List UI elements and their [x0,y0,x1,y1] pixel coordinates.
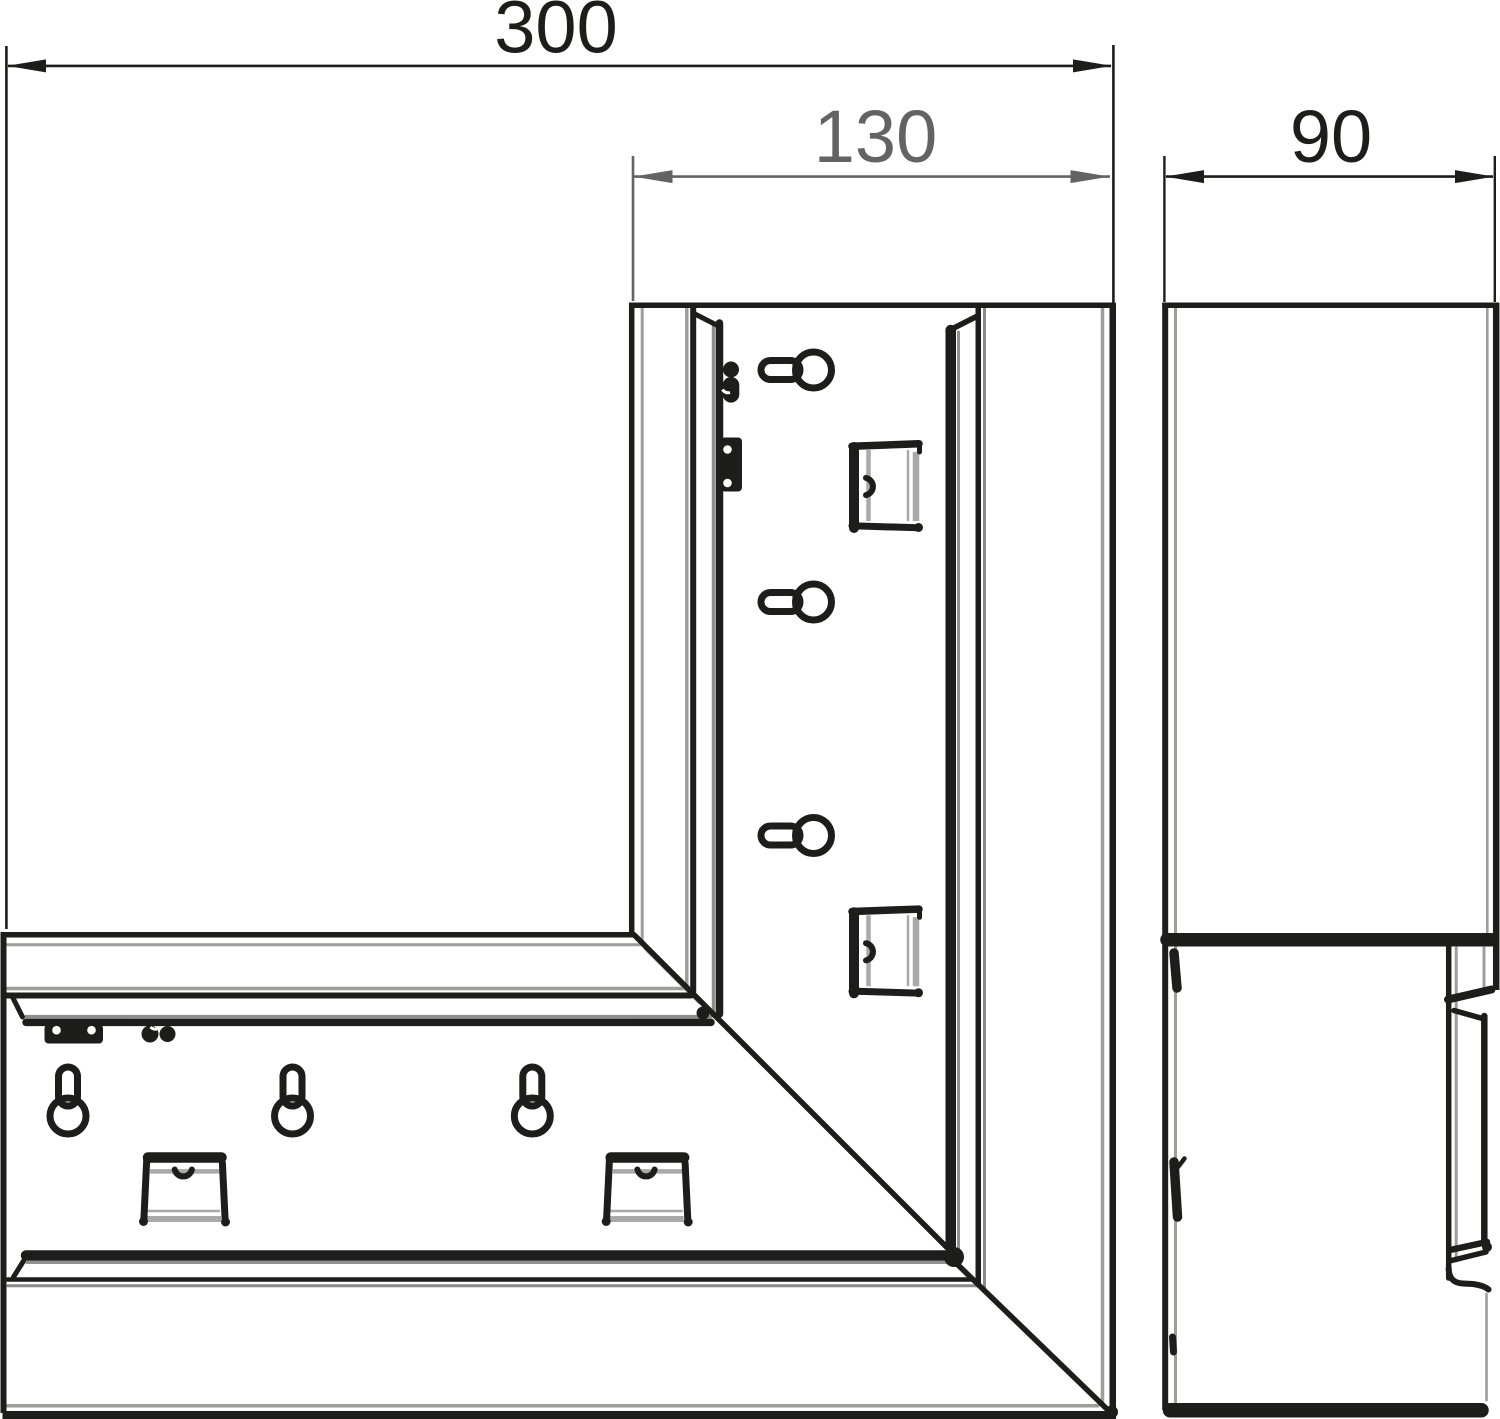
svg-text:300: 300 [494,0,617,69]
svg-text:90: 90 [1290,95,1372,178]
svg-text:130: 130 [814,95,937,178]
